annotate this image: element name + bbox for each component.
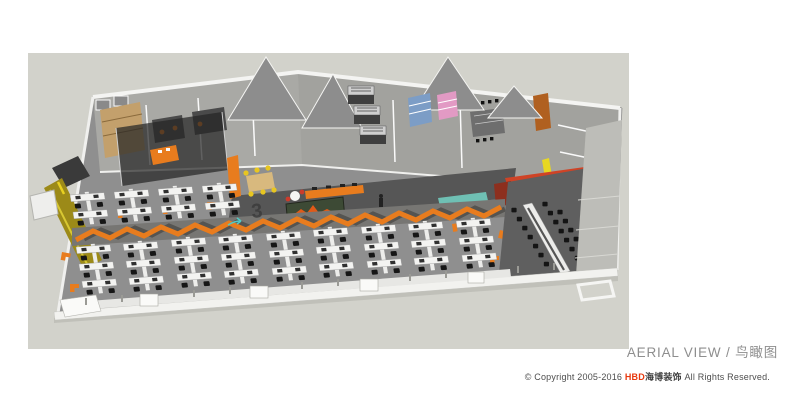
- balcony-box: [30, 190, 58, 220]
- caption-title-cn: 鸟瞰图: [735, 345, 778, 360]
- brand-name-en: HBD: [625, 372, 645, 382]
- caption-separator: /: [721, 345, 735, 360]
- copyright-prefix: © Copyright 2005-2016: [525, 372, 625, 382]
- caption-title-en: AERIAL VIEW: [627, 345, 722, 360]
- aerial-view-rendering: 3: [0, 0, 800, 400]
- copyright-line: © Copyright 2005-2016 HBD海博装饰 All Rights…: [525, 370, 770, 383]
- floor-numeral: 3: [250, 200, 263, 223]
- presentation-slide: 3: [0, 0, 800, 400]
- slide-caption: AERIAL VIEW / 鸟瞰图: [627, 341, 778, 361]
- round-table: [290, 191, 300, 201]
- person-figure: [379, 194, 383, 207]
- brand-name-cn: 海博装饰: [645, 372, 682, 382]
- copyright-suffix: All Rights Reserved.: [682, 372, 770, 382]
- office-floor-rendering: 3: [30, 57, 622, 323]
